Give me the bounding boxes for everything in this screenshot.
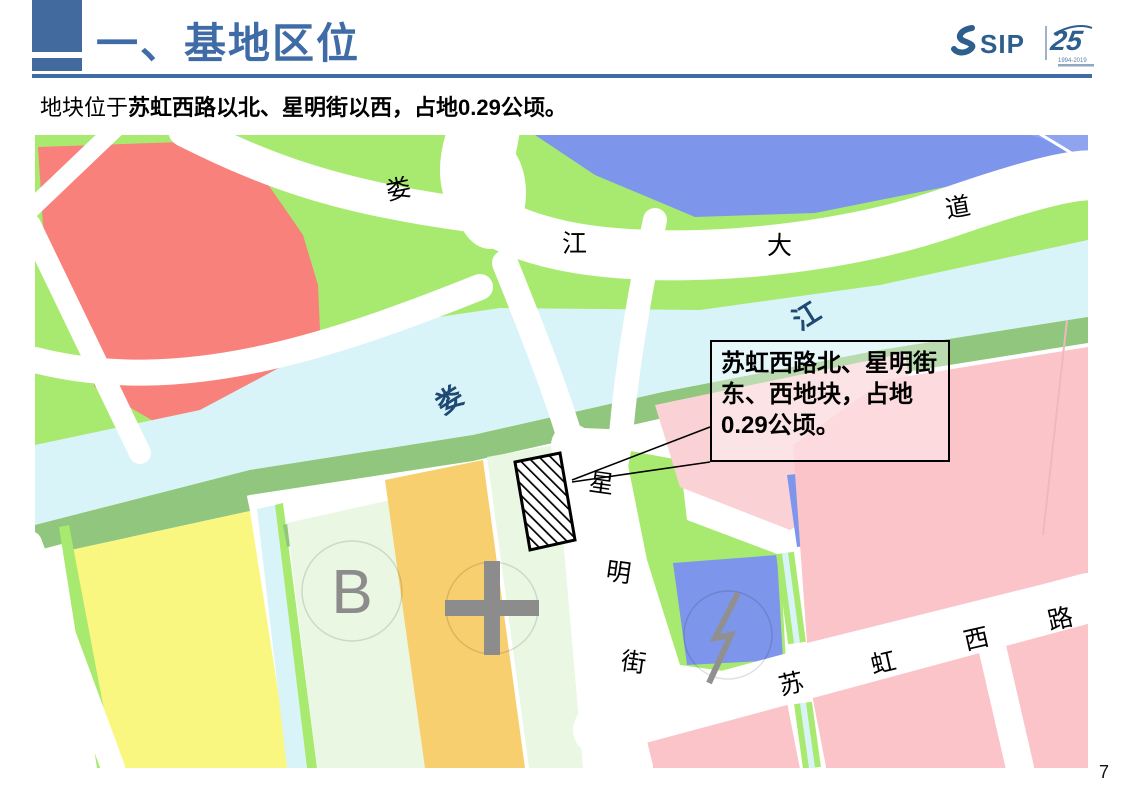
road-label: 大 bbox=[767, 232, 792, 260]
logo-microtext bbox=[1058, 64, 1094, 67]
b-marker-label: B bbox=[331, 558, 372, 627]
sip-logo-graphic: SIP 25 1994-2019 bbox=[950, 20, 1100, 68]
subtitle-prefix: 地块位于 bbox=[40, 95, 128, 120]
slide: 一、基地区位 SIP 25 1994-2019 地块位于苏虹西路以北、星明街以西… bbox=[0, 0, 1123, 794]
hospital-cross-icon bbox=[445, 561, 539, 655]
street-label: 星 bbox=[587, 468, 616, 499]
subtitle: 地块位于苏虹西路以北、星明街以西，占地0.29公顷。 bbox=[40, 90, 567, 122]
east-canal-upper bbox=[785, 553, 797, 643]
sip-text: SIP bbox=[980, 29, 1025, 59]
title-divider bbox=[32, 74, 1092, 78]
street-label: 街 bbox=[619, 647, 648, 678]
title-decor-bar bbox=[32, 58, 82, 71]
title-decor-square bbox=[32, 0, 82, 52]
anniversary-25: 25 bbox=[1048, 25, 1085, 56]
site-callout: 苏虹西路北、星明街东、西地块，占地0.29公顷。 bbox=[710, 340, 950, 462]
road-label: 道 bbox=[943, 192, 972, 224]
street-label: 明 bbox=[604, 557, 633, 588]
sip-swoosh-icon bbox=[954, 28, 972, 52]
page-number: 7 bbox=[1099, 762, 1109, 783]
anniversary-years: 1994-2019 bbox=[1058, 58, 1087, 64]
east-canal-lower bbox=[803, 703, 812, 768]
road-label: 江 bbox=[562, 230, 587, 258]
sip-logo: SIP 25 1994-2019 bbox=[950, 20, 1100, 68]
page-title: 一、基地区位 bbox=[96, 10, 360, 71]
subtitle-bold: 苏虹西路以北、星明街以西，占地0.29公顷。 bbox=[128, 95, 567, 120]
